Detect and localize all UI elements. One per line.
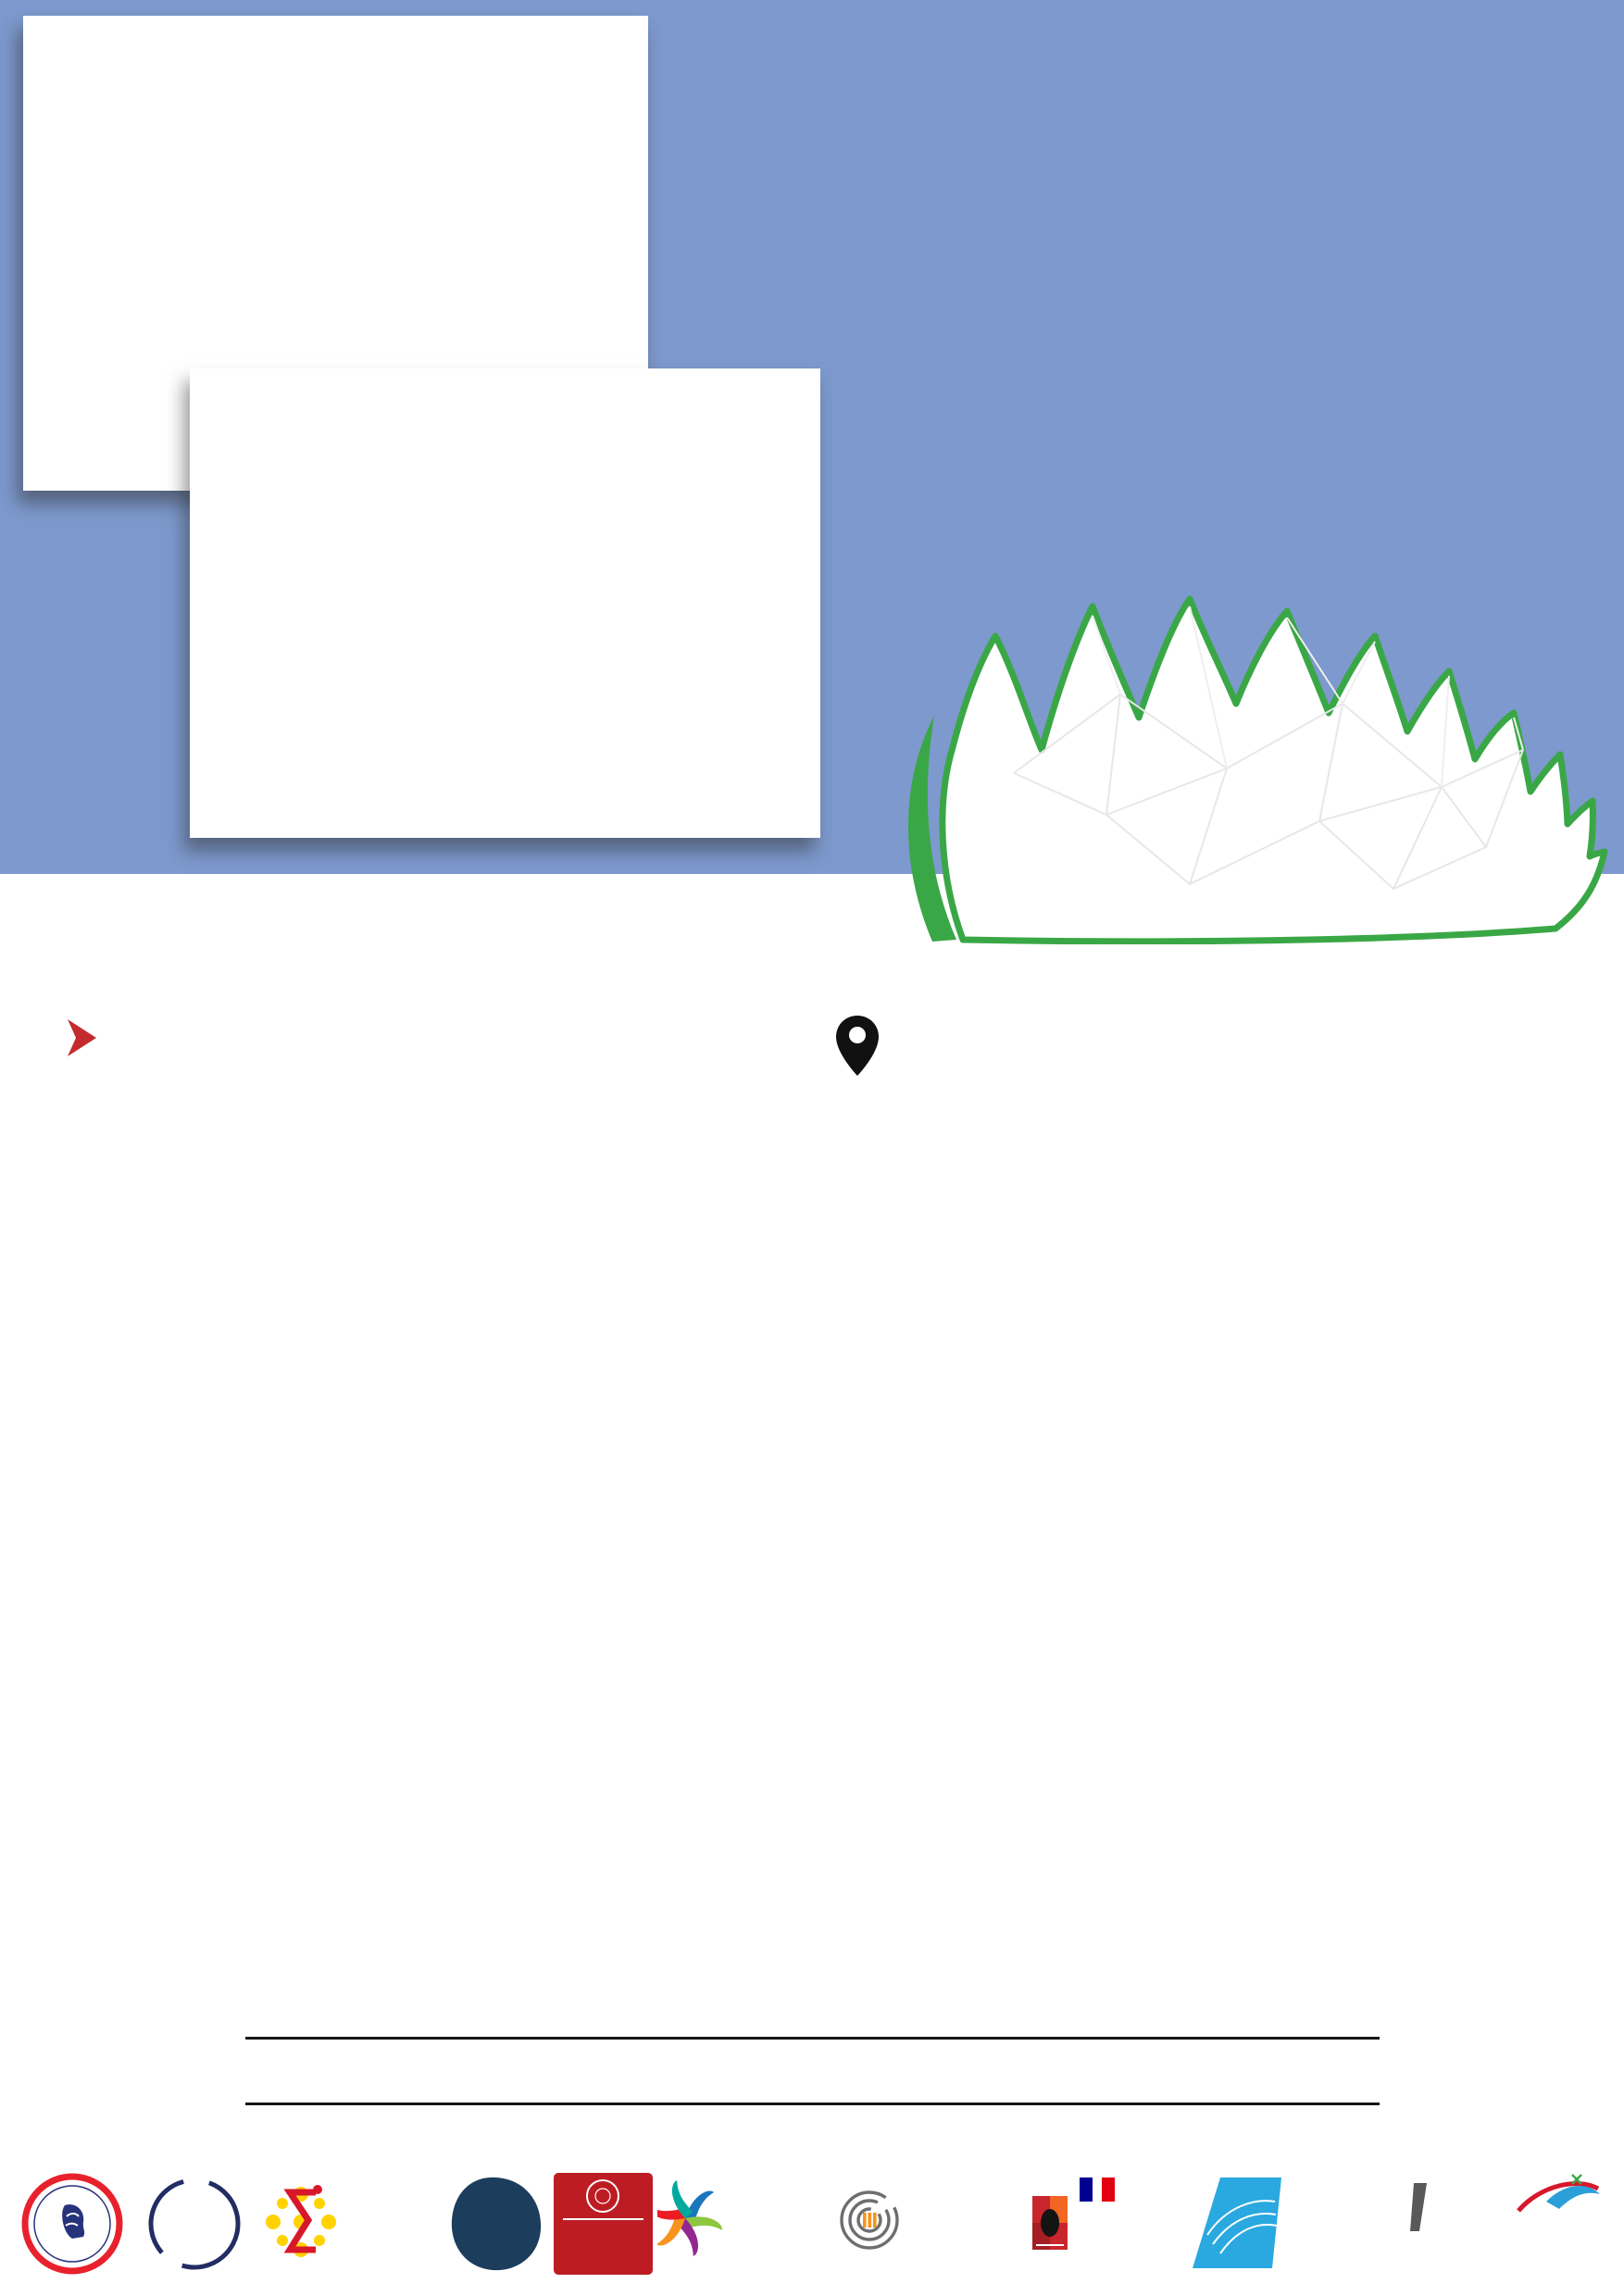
partner-logos-strip: [20, 2165, 1604, 2283]
investir-lavenir-logo: [20, 2170, 124, 2277]
republique-francaise-logo: [1072, 2170, 1188, 2277]
pinwheel-icon: [657, 2179, 723, 2256]
enac-logo: [1189, 2170, 1286, 2277]
insa-toulouse-logo: [1288, 2170, 1436, 2277]
cnrs-logo: [443, 2170, 549, 2277]
wave-plot-panel: [190, 368, 820, 838]
mint-logo: [875, 579, 1616, 949]
ut3-paul-sabatier-logo: [840, 2170, 1071, 2277]
divider-line-top: [245, 2037, 1380, 2040]
wave-chart-svg: [190, 368, 820, 838]
universite-federale-badge: [1032, 2196, 1068, 2250]
french-flag-icon: [1080, 2177, 1115, 2202]
institut-mathematiques-toulouse-logo: [266, 2170, 442, 2277]
session1-thumbnail: [100, 1341, 299, 1505]
isae-supaero-logo: [1437, 2170, 1604, 2277]
session2-thumbnail: [100, 1655, 299, 1820]
insa-wedge: [1410, 2183, 1427, 2231]
leaf-icon: [875, 579, 1616, 944]
france-2030-logo: [125, 2170, 264, 2277]
session1-thumb-svg: [100, 1341, 299, 1505]
ut-jean-jaures-logo: [657, 2170, 838, 2277]
divider-line-bottom: [245, 2103, 1380, 2105]
session2-thumb-svg: [100, 1655, 299, 1820]
poster-page: [0, 0, 1624, 2296]
location-pin-icon: [835, 1015, 880, 1078]
ut3-glyph: [842, 2192, 897, 2248]
ut1-capitole-logo: [550, 2170, 656, 2277]
chevron-right-icon: [65, 1017, 102, 1059]
